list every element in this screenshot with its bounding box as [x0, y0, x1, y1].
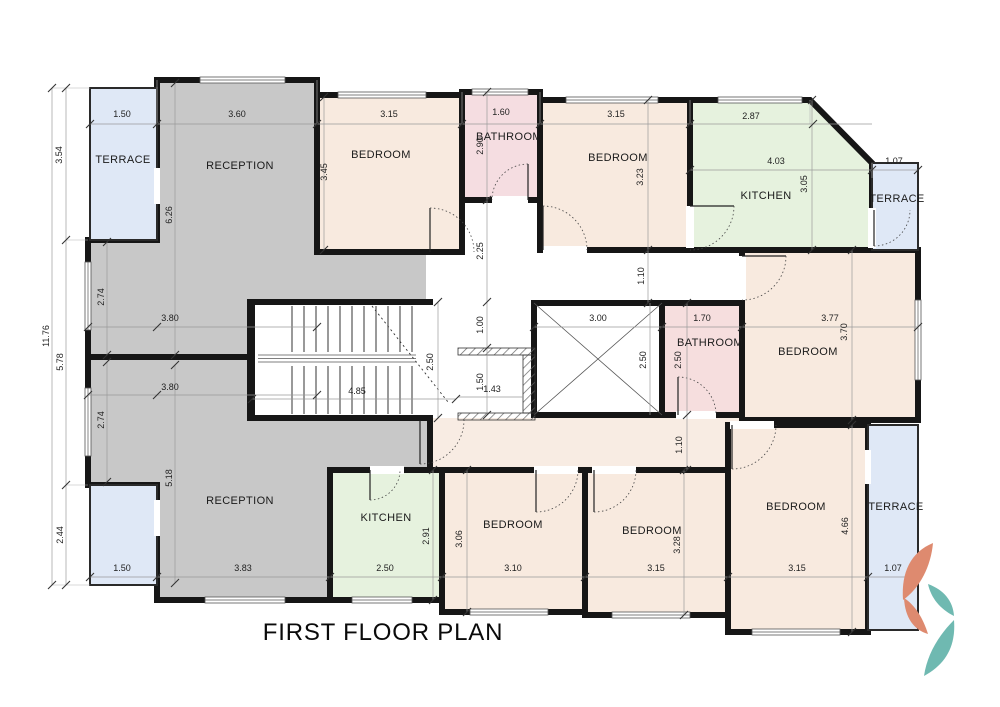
room-label-bathroom-m: BATHROOM	[677, 337, 743, 349]
dim-label-bathroom-m-w: 1.70	[693, 313, 711, 323]
dim-label-reception-b-h: 5.18	[164, 469, 174, 487]
dim-label-bedroom-t2-h: 3.23	[635, 168, 645, 186]
room-label-reception-top: RECEPTION	[206, 160, 274, 172]
logo-leaf-teal-1	[928, 584, 954, 616]
room-label-bedroom-b1: BEDROOM	[483, 519, 543, 531]
dim-label-bedroom-b3-h: 4.66	[840, 517, 850, 535]
room-bedroom-t2	[540, 100, 690, 250]
stair-room-floor	[252, 299, 420, 421]
dim-label-reception-top-w: 3.60	[228, 109, 246, 119]
logo	[903, 543, 955, 676]
dim-label-duct-w: 1.43	[483, 384, 501, 394]
dim-label-bathroom-t-w: 1.60	[492, 107, 510, 117]
room-label-bedroom-t2: BEDROOM	[588, 152, 648, 164]
room-label-bedroom-t1: BEDROOM	[351, 149, 411, 161]
room-label-terrace-tr: TERRACE	[869, 193, 924, 205]
dim-label-bedroom-b1-w: 3.10	[504, 563, 522, 573]
dim-label-bedroom-r-h: 3.70	[839, 323, 849, 341]
room-label-bedroom-b2: BEDROOM	[622, 525, 682, 537]
dim-label-bedroom-b2-w: 3.15	[647, 563, 665, 573]
dim-label-kitchen-b-w: 2.50	[376, 563, 394, 573]
dim-label-bedroom-r-w: 3.77	[821, 313, 839, 323]
dim-label-duct-b: 1.50	[475, 373, 485, 391]
dim-label-reception-mid-a: 3.80	[161, 313, 179, 323]
dim-label-bedroom-b3-w: 3.15	[788, 563, 806, 573]
dim-label-terrace-br-w: 1.07	[884, 563, 902, 573]
room-label-kitchen-b: KITCHEN	[360, 512, 411, 524]
plan-title: FIRST FLOOR PLAN	[263, 619, 503, 647]
room-kitchen-t	[690, 100, 872, 250]
room-label-bedroom-r: BEDROOM	[778, 346, 838, 358]
dim-label-bathroom-m-h: 2.50	[673, 351, 683, 369]
dim-label-corridor-b: 1.10	[674, 436, 684, 454]
dim-label-left-window-a: 2.74	[96, 288, 106, 306]
dim-label-kitchen-top-w: 2.87	[742, 111, 760, 121]
room-label-reception-b: RECEPTION	[206, 495, 274, 507]
dim-label-hall-h: 2.25	[475, 242, 485, 260]
dim-label-bathroom-t-h: 2.90	[475, 137, 485, 155]
dim-label-bedroom-b1-h: 3.06	[454, 530, 464, 548]
dim-label-stair-w: 4.85	[348, 386, 366, 396]
dim-label-reception-top-h: 6.26	[164, 206, 174, 224]
room-label-bathroom-t: BATHROOM	[476, 131, 542, 143]
dim-label-kitchen-w: 4.03	[767, 156, 785, 166]
dim-label-bedroom-t2-w: 3.15	[607, 109, 625, 119]
dim-label-shaft-w: 3.00	[589, 313, 607, 323]
dim-label-duct-a: 1.00	[475, 316, 485, 334]
room-label-bedroom-b3: BEDROOM	[766, 501, 826, 513]
dim-label-kitchen-b-h: 2.91	[421, 527, 431, 545]
floor-plan-page: TERRACE RECEPTION BEDROOM BATHROOM BEDRO…	[0, 0, 1000, 707]
stairwell	[252, 299, 448, 421]
room-label-kitchen-t: KITCHEN	[740, 190, 791, 202]
dim-label-bedroom-b2-h: 3.28	[672, 536, 682, 554]
dim-label-reception-b-w: 3.83	[234, 563, 252, 573]
dim-label-left-window-b: 2.74	[96, 411, 106, 429]
dim-label-terrace-tr-w: 1.07	[885, 156, 903, 166]
room-label-terrace-tl: TERRACE	[95, 154, 150, 166]
room-label-terrace-br: TERRACE	[868, 501, 923, 513]
room-terrace-tr	[872, 163, 918, 250]
dim-label-corridor-a: 1.10	[636, 267, 646, 285]
dim-label-reception-mid-b: 3.80	[161, 382, 179, 392]
dim-label-terrace-tl-h: 3.54	[54, 146, 64, 164]
room-terrace-br	[868, 425, 918, 630]
dim-label-shaft-h: 2.50	[638, 351, 648, 369]
dim-label-stair-h: 2.50	[425, 353, 435, 371]
room-bedroom-b2	[585, 470, 728, 615]
dim-label-terrace-bl-h: 2.44	[55, 526, 65, 544]
dim-label-total-h: 11.76	[41, 325, 51, 347]
dim-label-bedroom-t1-h: 3.45	[319, 163, 329, 181]
logo-leaf-teal-2	[924, 620, 954, 676]
dim-label-terrace-bl-w: 1.50	[113, 563, 131, 573]
room-bedroom-r	[742, 250, 918, 420]
dim-label-bedroom-t1-w: 3.15	[380, 109, 398, 119]
dim-label-mid-h: 5.78	[55, 353, 65, 371]
dim-label-terrace-tl-w: 1.50	[113, 109, 131, 119]
dim-label-kitchen-t-h: 3.05	[799, 175, 809, 193]
